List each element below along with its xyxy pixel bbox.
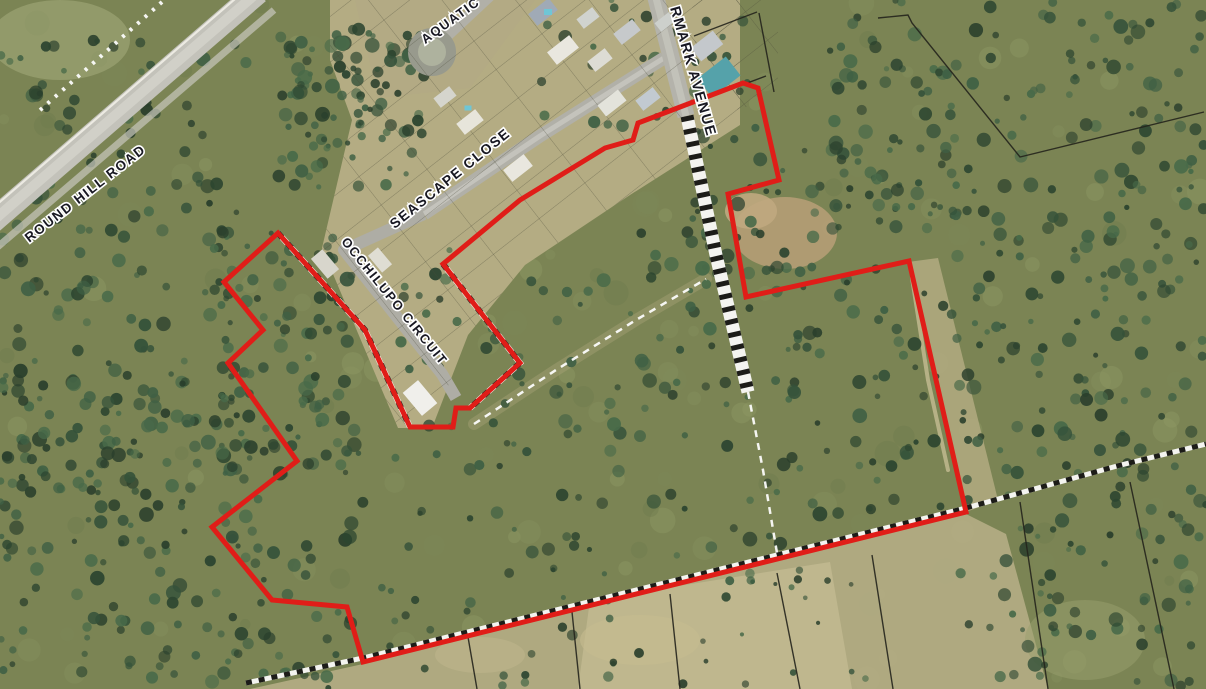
aerial-map-canvas: ROUND HILL ROADAQUATICSEASCAPE CLOSEOCCH… — [0, 0, 1206, 689]
swimming-pool — [544, 9, 552, 15]
swimming-pool — [465, 106, 472, 111]
aerial-map-view: ROUND HILL ROADAQUATICSEASCAPE CLOSEOCCH… — [0, 0, 1206, 689]
